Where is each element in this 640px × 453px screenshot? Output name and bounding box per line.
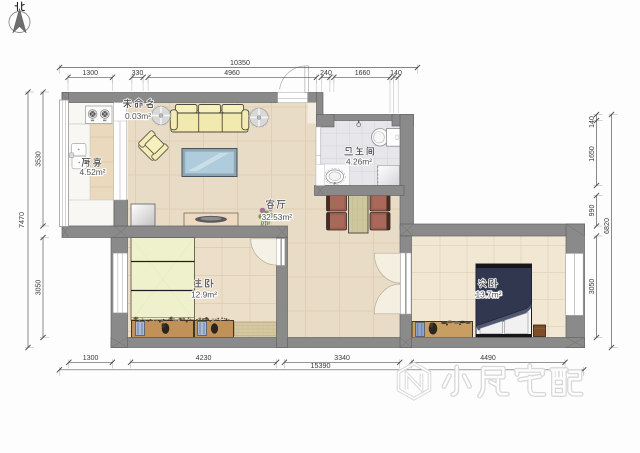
svg-text:4.26m²: 4.26m²	[346, 157, 372, 167]
svg-text:3530: 3530	[36, 151, 43, 167]
svg-text:330: 330	[132, 70, 144, 77]
svg-text:140: 140	[390, 70, 402, 77]
svg-text:4230: 4230	[196, 355, 212, 362]
svg-text:140: 140	[589, 116, 596, 128]
svg-text:1660: 1660	[355, 70, 371, 77]
svg-text:7470: 7470	[17, 212, 26, 228]
svg-text:240: 240	[320, 70, 332, 77]
svg-text:0.03m²: 0.03m²	[125, 111, 151, 121]
svg-text:1300: 1300	[82, 70, 98, 77]
svg-text:3050: 3050	[589, 279, 596, 295]
svg-text:4960: 4960	[224, 70, 240, 77]
svg-text:15390: 15390	[311, 361, 331, 370]
svg-text:32.53m²: 32.53m²	[262, 212, 293, 222]
svg-text:4490: 4490	[480, 355, 496, 362]
svg-text:13.7m²: 13.7m²	[476, 290, 502, 300]
svg-text:4.52m²: 4.52m²	[80, 167, 106, 177]
svg-text:3050: 3050	[36, 280, 43, 296]
svg-text:1650: 1650	[589, 146, 596, 162]
svg-text:10350: 10350	[230, 58, 250, 67]
svg-text:3340: 3340	[334, 355, 350, 362]
svg-text:6820: 6820	[602, 218, 611, 234]
svg-text:990: 990	[589, 205, 596, 217]
svg-text:1300: 1300	[83, 355, 99, 362]
svg-text:12.9m²: 12.9m²	[191, 290, 217, 300]
